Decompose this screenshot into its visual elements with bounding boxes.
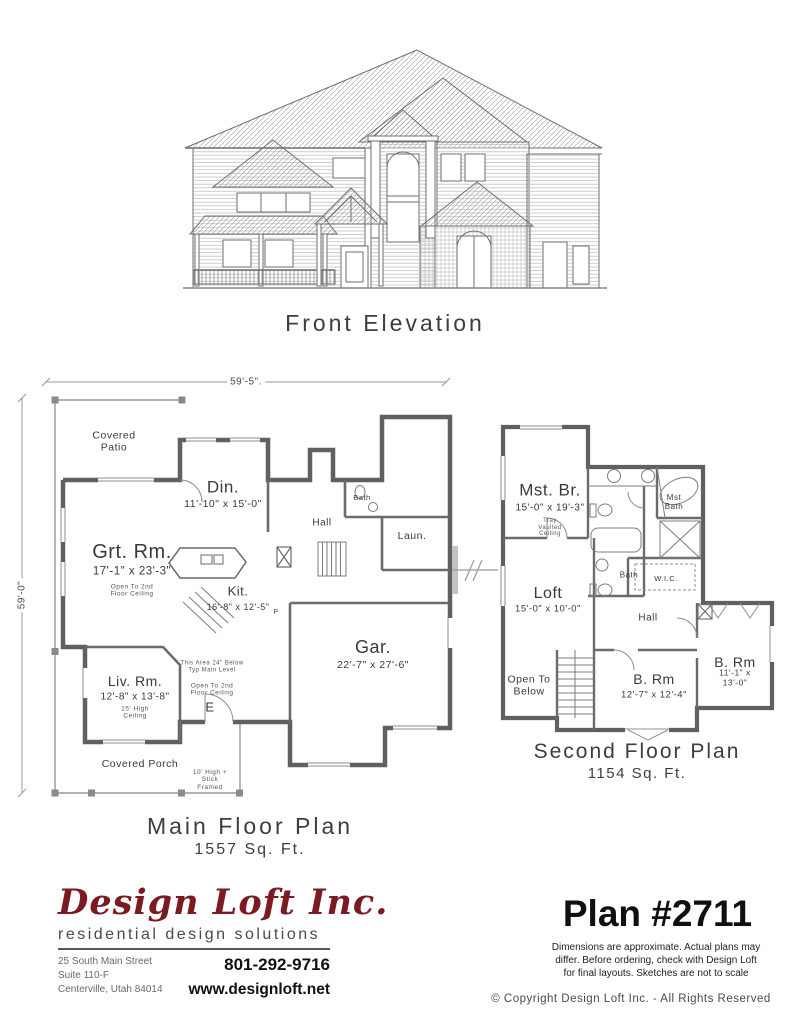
note-tray-ceiling: Tray Vaulted Ceiling bbox=[538, 518, 561, 538]
company-logo-block: Design Loft Inc. residential design solu… bbox=[58, 885, 388, 999]
elevation-line-art bbox=[183, 50, 607, 288]
room-label-dining: Din. bbox=[207, 477, 239, 496]
disclaimer-text: Dimensions are approximate. Actual plans… bbox=[520, 941, 791, 981]
second-floor-caption: Second Floor Plan bbox=[497, 740, 777, 764]
chase-box bbox=[698, 604, 712, 619]
room-label-covered-patio: Covered Patio bbox=[92, 430, 135, 454]
company-contact: 801-292-9716 www.designloft.net bbox=[188, 955, 330, 999]
address-line-2: Suite 110-F bbox=[58, 969, 163, 983]
room-label-loft: Loft bbox=[534, 585, 563, 603]
main-floor-plan: 59'-5". 59'-0" Covered Patio Din. 11'-10… bbox=[10, 370, 462, 825]
note-open-below: Open To Below bbox=[507, 674, 550, 698]
room-label-covered-porch: Covered Porch bbox=[102, 759, 179, 771]
room-label-kitchen: Kit. bbox=[228, 585, 249, 600]
stairs-up bbox=[318, 542, 346, 576]
note-area-below: This Area 24" Below Typ Main Level bbox=[180, 660, 243, 673]
room-dims-great-room: 17'-1" x 23'-3" bbox=[93, 566, 171, 579]
address-line-1: 25 South Main Street bbox=[58, 955, 163, 969]
main-floor-area: 1557 Sq. Ft. bbox=[90, 841, 410, 859]
dim-height-label: 59'-0" bbox=[16, 578, 27, 612]
stairs bbox=[557, 650, 594, 718]
second-floor-plan: Mst. Br. 15'-0" x 19'-3" Tray Vaulted Ce… bbox=[452, 418, 790, 750]
note-living-ceiling: 15' High Ceiling bbox=[121, 706, 149, 721]
room-dims-dining: 11'-10" x 15'-0" bbox=[184, 499, 262, 511]
match-line bbox=[452, 546, 503, 594]
company-address: 25 South Main Street Suite 110-F Centerv… bbox=[58, 955, 163, 999]
front-elevation-svg bbox=[165, 36, 625, 318]
room-dims-garage: 22'-7" x 27'-6" bbox=[337, 660, 409, 672]
room-label-living: Liv. Rm. bbox=[108, 674, 162, 690]
second-floor-area: 1154 Sq. Ft. bbox=[497, 765, 777, 782]
room-label-master-bath: Mst Bath bbox=[665, 494, 683, 512]
copyright-text: © Copyright Design Loft Inc. - All Right… bbox=[472, 993, 790, 1005]
front-elevation-drawing bbox=[165, 36, 625, 318]
room-label-great-room: Grt. Rm. bbox=[92, 541, 172, 563]
front-elevation-caption: Front Elevation bbox=[245, 310, 525, 337]
phone-number: 801-292-9716 bbox=[188, 955, 330, 975]
plan-number: Plan #2711 bbox=[525, 893, 790, 935]
room-label-wic: W.I.C. bbox=[654, 575, 677, 583]
room-label-hall: Hall bbox=[312, 517, 331, 528]
note-stick-framed: 10' High + Stick Framed bbox=[193, 769, 227, 791]
kitchen-island bbox=[169, 548, 246, 578]
room-dims-bedroom1: 12'-7" x 12'-4" bbox=[621, 691, 687, 702]
main-floor-caption: Main Floor Plan bbox=[90, 813, 410, 840]
room-label-hall2: Hall bbox=[638, 612, 657, 623]
company-tagline: residential design solutions bbox=[58, 926, 330, 950]
room-dims-master: 15'-0" x 19'-3" bbox=[515, 502, 584, 513]
note-open-ceiling-entry: Open To 2nd Floor Ceiling bbox=[191, 683, 234, 698]
pantry-label: P bbox=[273, 609, 278, 617]
door-label-e: E bbox=[205, 701, 214, 716]
hall-bath-fixtures bbox=[590, 504, 641, 596]
room-label-garage: Gar. bbox=[355, 637, 391, 657]
address-line-3: Centerville, Utah 84014 bbox=[58, 983, 163, 997]
company-name: Design Loft Inc. bbox=[58, 885, 388, 920]
dim-width-label: 59'-5". bbox=[227, 376, 265, 387]
room-dims-loft: 15'-0" x 10'-0" bbox=[515, 605, 581, 616]
room-label-laundry: Laun. bbox=[398, 531, 427, 543]
room-label-bath: Bath bbox=[353, 494, 370, 502]
room-label-bath2: Bath bbox=[620, 572, 638, 581]
plan-sheet: Front Elevation bbox=[0, 0, 791, 1024]
room-dims-living: 12'-8" x 13'-8" bbox=[100, 691, 169, 702]
note-open-ceiling-great: Open To 2nd Floor Ceiling bbox=[111, 584, 154, 599]
room-label-bedroom1: B. Rm bbox=[633, 672, 674, 688]
website-url: www.designloft.net bbox=[188, 981, 330, 999]
room-dims-kitchen: 16'-8" x 12'-5" bbox=[207, 602, 270, 612]
chase-box bbox=[277, 547, 291, 567]
room-dims-bedroom2: 11'-1" x 13'-0" bbox=[708, 668, 763, 687]
room-label-master: Mst. Br. bbox=[519, 480, 581, 499]
